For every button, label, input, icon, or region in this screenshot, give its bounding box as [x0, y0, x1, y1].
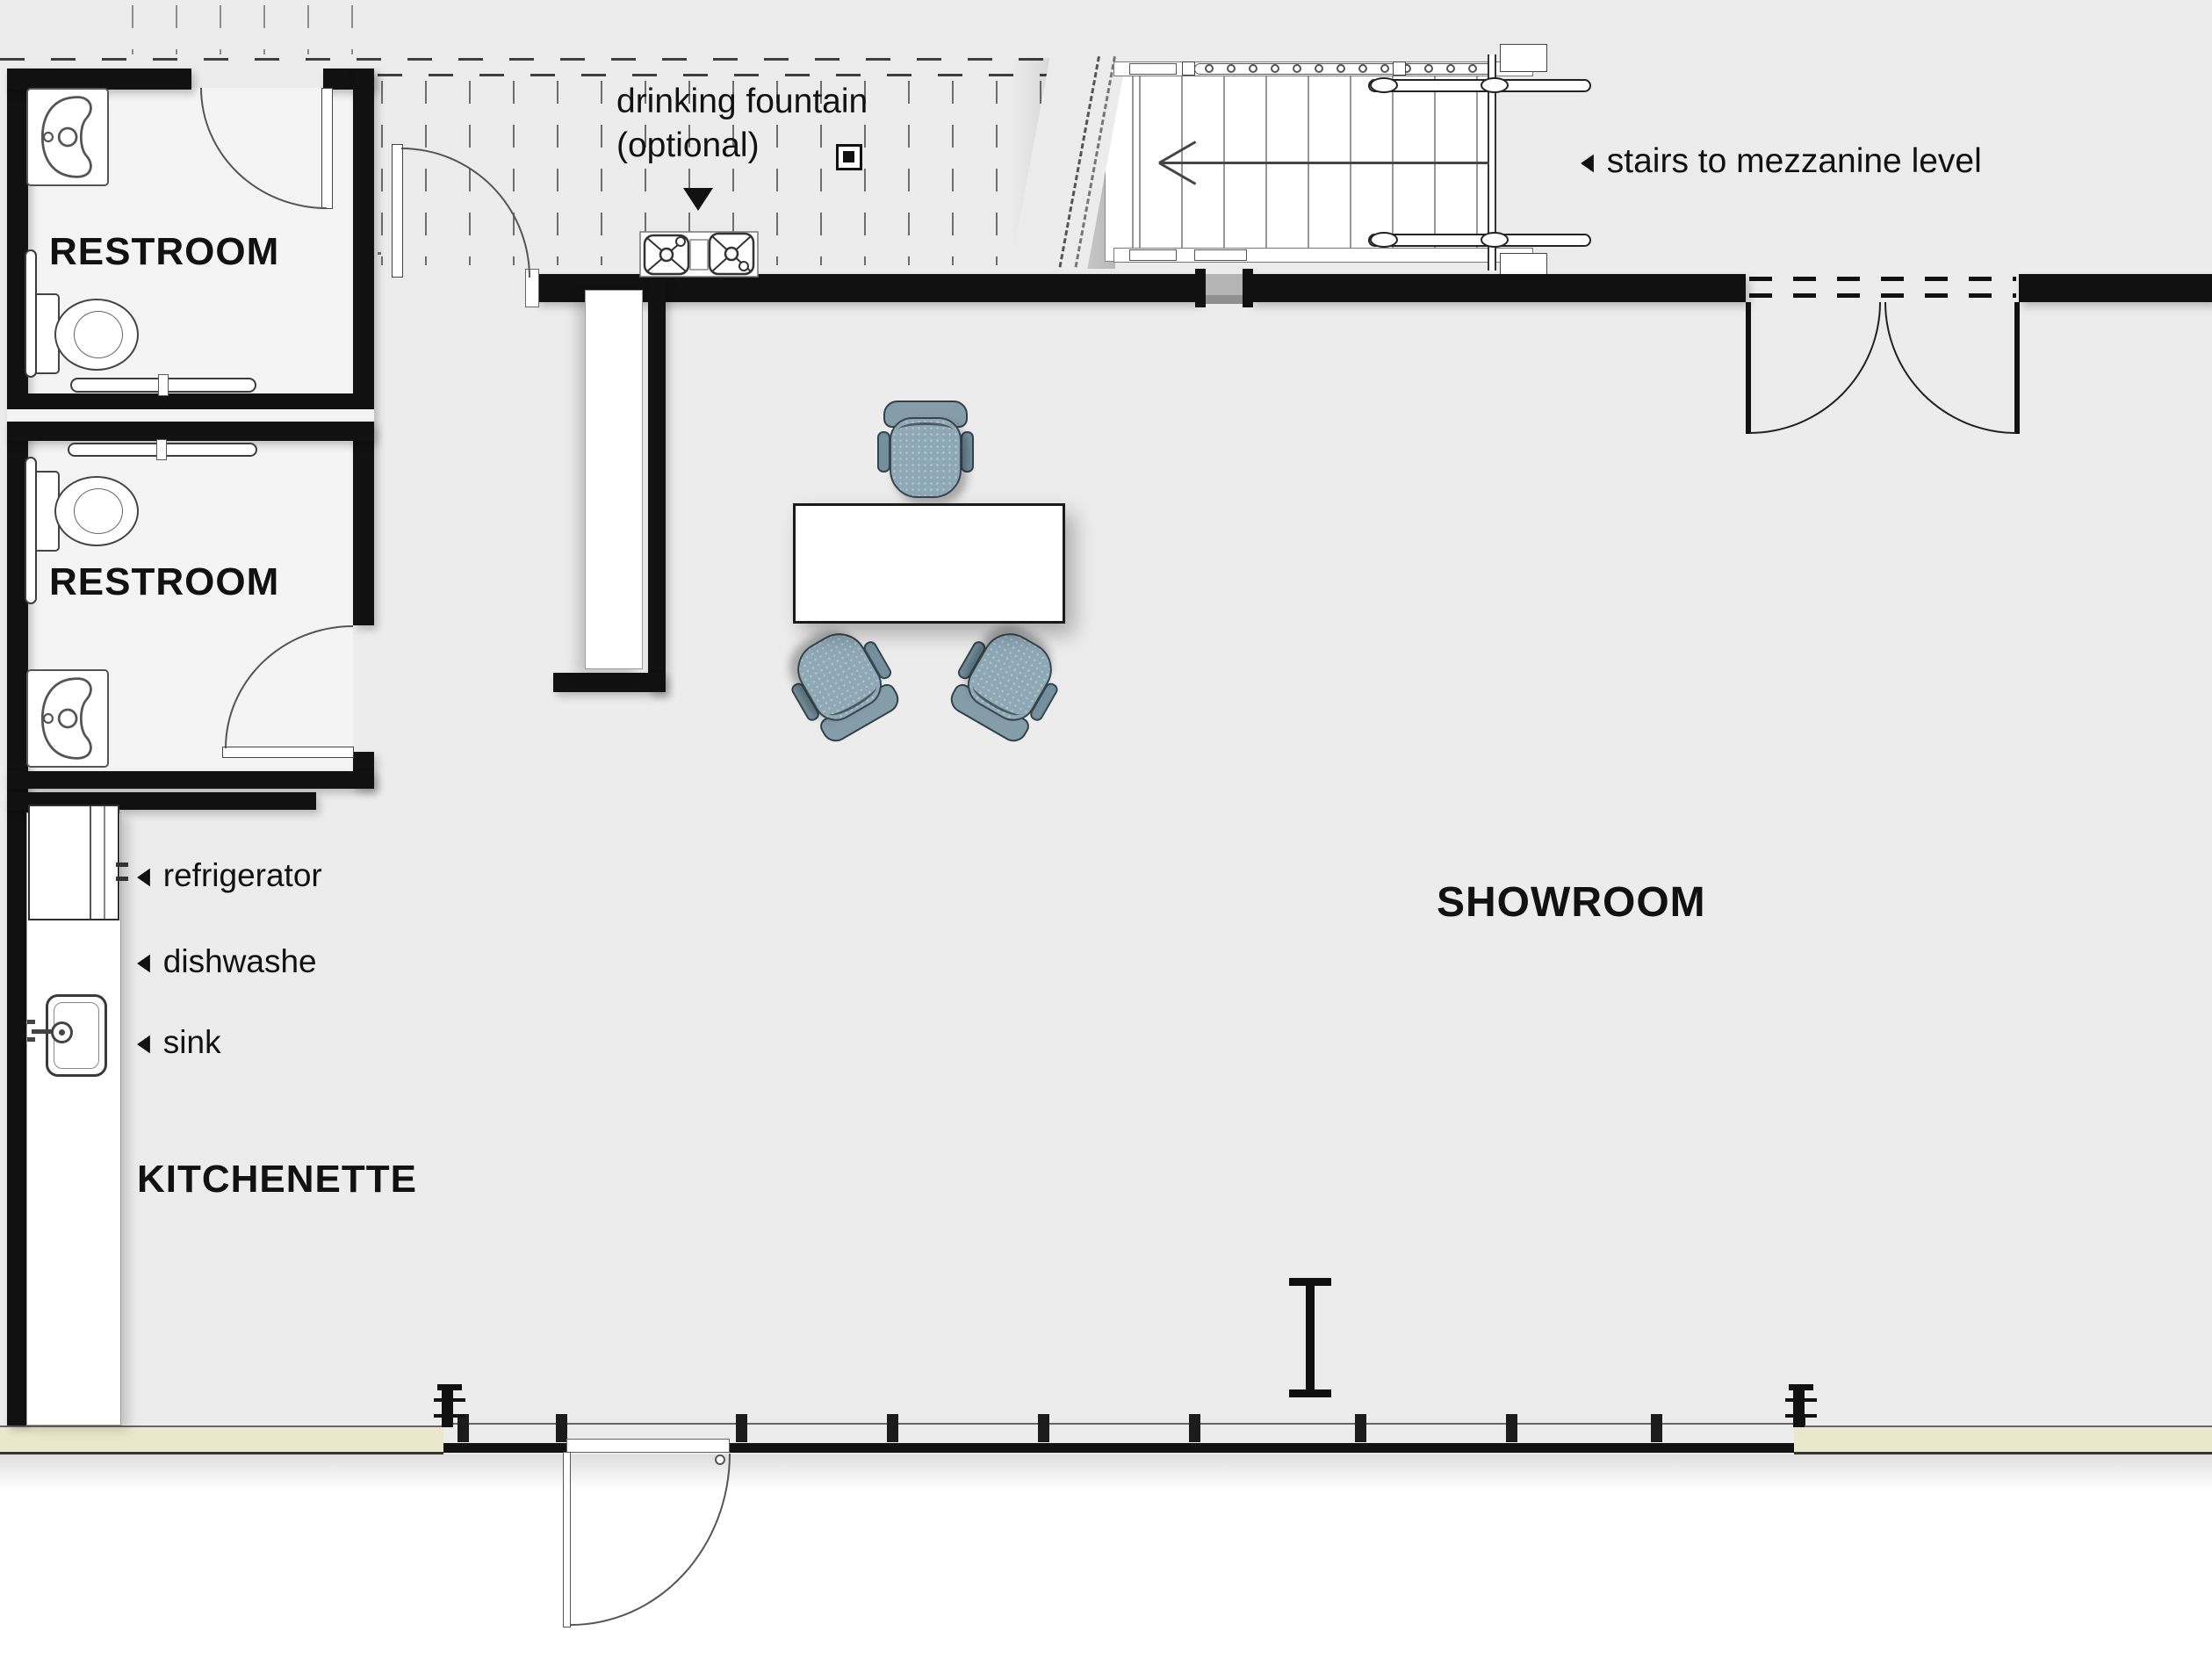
partition-wall-return	[553, 673, 666, 692]
building-drop-shadow	[0, 1454, 2212, 1490]
left-arrow-icon: ◀	[137, 862, 150, 890]
kitchen-sink-faucet	[51, 1021, 73, 1043]
sink-basin	[30, 673, 104, 764]
double-door-arc-right	[1884, 302, 2016, 434]
stairs-rail-post-1	[1182, 61, 1195, 76]
stairs-handrail-bottom-ring-2	[1481, 232, 1509, 248]
room-label-restroom-top: RESTROOM	[49, 230, 279, 274]
kitchen-sink-handle-2	[27, 1037, 35, 1042]
restroom-top-wall-left	[7, 69, 191, 90]
stairs-handrail-top	[1368, 79, 1591, 92]
stairs-baluster	[1315, 64, 1323, 73]
stairs-bottom-tray-2	[1194, 249, 1247, 261]
restroom-bottom-grab-bar-vertical	[25, 457, 37, 604]
dishwasher-label: ◀ dishwashe	[137, 943, 317, 980]
storefront-mullion	[887, 1414, 898, 1442]
restroom-bottom-toilet-seat	[74, 488, 123, 534]
entry-door-threshold	[566, 1439, 730, 1453]
storefront-glass-line	[443, 1423, 1794, 1425]
stairs-baluster	[1205, 64, 1214, 73]
stairs-rail-post-2	[1393, 61, 1406, 76]
stairs-handrail-top-ring-2	[1481, 77, 1509, 93]
storefront-mullion	[1355, 1414, 1366, 1442]
room-label-showroom: SHOWROOM	[1437, 878, 1706, 927]
steel-column-ibeam	[1289, 1278, 1331, 1397]
refrigerator	[28, 805, 119, 920]
left-arrow-icon: ◀	[137, 949, 150, 976]
drinking-fountain-text-1: drinking fountain	[616, 83, 868, 121]
conference-table	[793, 503, 1065, 624]
storefront-mullion	[1189, 1414, 1200, 1442]
storefront-mullion	[1038, 1414, 1049, 1442]
restroom-bottom-wall	[7, 771, 374, 789]
mezzanine-dash-row-2	[378, 74, 1098, 76]
stairs-label-text: stairs to mezzanine level	[1607, 142, 1982, 181]
restroom-divider-wall-b	[7, 422, 374, 441]
restroom-top-grab-bar-bracket	[158, 374, 169, 396]
stairs-baluster	[1424, 64, 1433, 73]
stairs-handrail-top-ring-1	[1370, 77, 1398, 93]
stairs-baluster	[1446, 64, 1455, 73]
drinking-fountain-fixture	[639, 231, 759, 278]
stairs-handrail-bottom-ring-1	[1370, 232, 1398, 248]
stair-wall-inset	[1206, 274, 1243, 295]
sink-label-text: sink	[163, 1024, 221, 1061]
storefront-mullion	[1506, 1414, 1517, 1442]
stairs-handrail-bottom	[1368, 234, 1591, 247]
south-wall-left	[0, 1425, 443, 1454]
down-arrow-icon	[683, 188, 713, 211]
left-arrow-icon: ◀	[137, 1029, 150, 1057]
mezzanine-dash-columns-above-restroom	[132, 5, 379, 54]
chair-bottom-left	[773, 611, 909, 751]
wall-end-column-right	[1785, 1384, 1817, 1428]
partition-wall	[648, 279, 666, 692]
kitchen-sink-handle-1	[27, 1020, 35, 1024]
chair-top	[877, 400, 974, 505]
restroom-top-sink	[26, 88, 109, 186]
stairs-baluster	[1227, 64, 1236, 73]
refrigerator-label-text: refrigerator	[163, 857, 322, 894]
left-arrow-icon: ◀	[1581, 148, 1594, 176]
stairs-label: ◀ stairs to mezzanine level	[1581, 142, 1982, 181]
refrigerator-handle-2	[116, 877, 128, 881]
drinking-fountain-label-line1: drinking fountain	[616, 83, 868, 121]
room-label-kitchenette: KITCHENETTE	[137, 1158, 417, 1202]
restroom-top-grab-bar-vertical	[25, 249, 37, 378]
double-door-dashes-top	[1749, 277, 2016, 281]
double-door-arc-left	[1749, 302, 1881, 434]
wall-end-column-left	[434, 1384, 465, 1428]
stairs-baluster	[1293, 64, 1301, 73]
sink-basin	[30, 91, 104, 183]
chair-bottom-right	[940, 611, 1076, 751]
restroom-bottom-grab-bar-bracket	[156, 439, 167, 460]
entry-door-leaf	[563, 1452, 571, 1628]
restroom-divider-wall-a	[7, 393, 374, 409]
display-panel	[585, 290, 643, 669]
stairs-baluster	[1468, 64, 1477, 73]
mezzanine-dash-row-top	[0, 58, 1098, 61]
restroom-bottom-sink	[26, 669, 109, 768]
stairs-top-tray	[1129, 63, 1177, 75]
restroom-right-wall-upper	[353, 69, 374, 625]
stairs-baluster	[1380, 64, 1389, 73]
showroom-north-wall-2	[1250, 274, 1746, 302]
room-label-restroom-bottom: RESTROOM	[49, 560, 279, 604]
drinking-fountain-symbol	[836, 144, 862, 170]
stair-wall-inset-lower	[1206, 295, 1243, 304]
stairs-baluster	[1271, 64, 1279, 73]
refrigerator-handle-1	[116, 862, 128, 867]
stairs-corner-plate-top	[1500, 44, 1547, 72]
restroom-divider-gap	[7, 409, 374, 422]
stairs-baluster	[1249, 64, 1257, 73]
sink-label: ◀ sink	[137, 1024, 221, 1061]
south-wall-right	[1794, 1425, 2212, 1454]
drinking-fountain-text-2: (optional)	[616, 126, 760, 165]
storefront-mullion	[1651, 1414, 1662, 1442]
refrigerator-label: ◀ refrigerator	[137, 857, 322, 894]
showroom-north-wall-3	[2019, 274, 2212, 302]
floor-plan: { "document": { "type": "architectural f…	[0, 0, 2212, 1660]
stairs-bottom-tray-1	[1129, 249, 1177, 261]
stair-wall-post-right	[1243, 269, 1253, 307]
restroom-top-toilet-seat	[74, 311, 123, 358]
drinking-fountain-label-line2: (optional)	[616, 126, 760, 165]
dishwasher-label-text: dishwashe	[163, 943, 317, 980]
stair-wall-post-left	[1195, 269, 1206, 307]
storefront-mullion	[736, 1414, 747, 1442]
stairs-baluster	[1337, 64, 1345, 73]
stairs-direction-line	[1161, 162, 1489, 164]
stairs-baluster	[1358, 64, 1367, 73]
double-door-dashes-bottom	[1749, 293, 2016, 298]
